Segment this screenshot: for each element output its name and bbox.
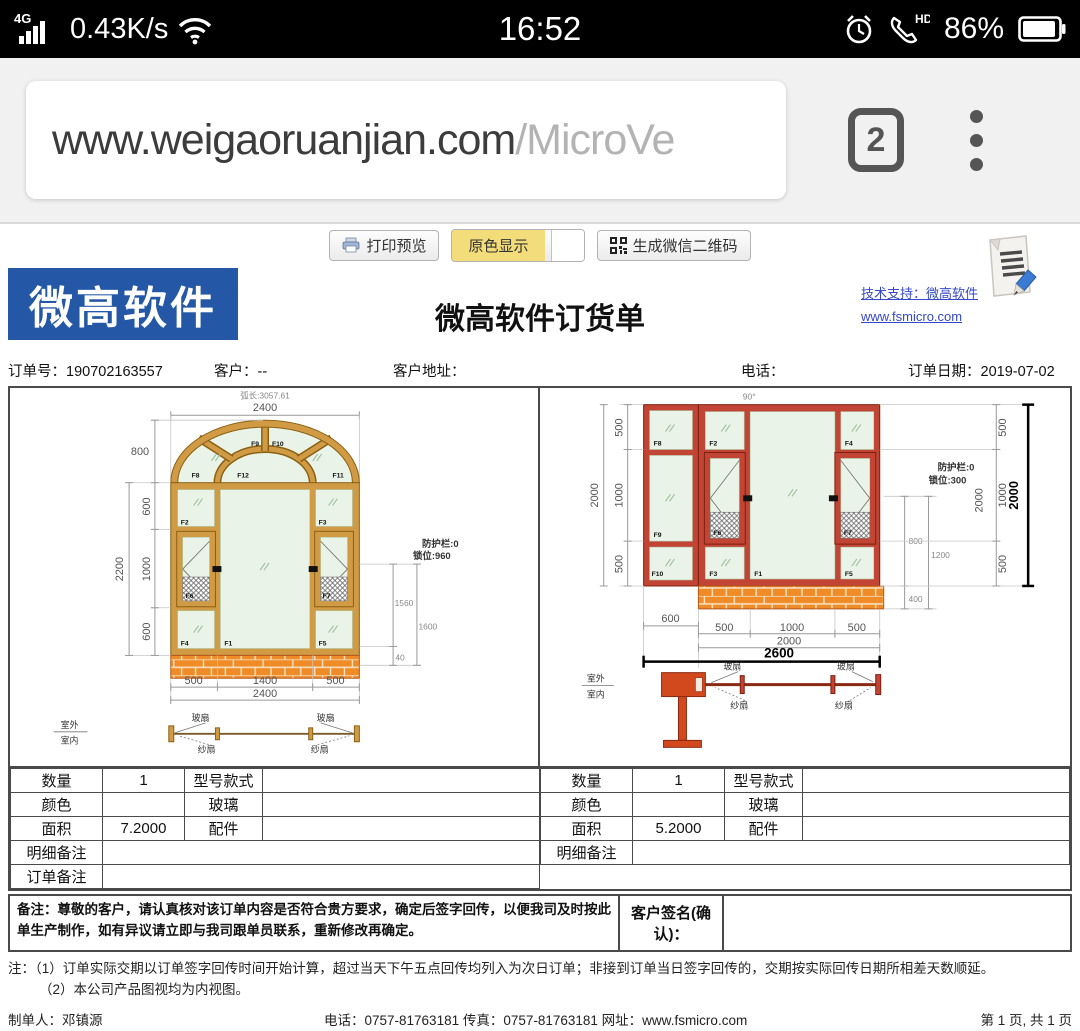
dim-label: 600 (661, 613, 679, 625)
dim-label: 400 (909, 594, 923, 604)
panel-label: F4 (845, 440, 853, 447)
panel-label: F6 (186, 593, 194, 600)
dim-label: 1000 (780, 622, 804, 634)
guard-label: 防护栏:0 (422, 538, 459, 549)
footnote-line: （2）本公司产品图视均为内视图。 (8, 980, 1072, 1001)
support-links: 技术支持：微高软件 www.fsmicro.com (861, 282, 978, 329)
dim-label: 800 (131, 446, 149, 458)
outside-label: 室外 (61, 719, 79, 730)
dim-label: 2000 (589, 483, 601, 507)
panel-label: F4 (181, 640, 189, 647)
panel-label: F2 (181, 519, 189, 526)
empty-cell (541, 865, 1070, 890)
glass-sash-label: 玻扇 (837, 661, 855, 672)
url-bar[interactable]: www.weigaoruanjian.com/MicroVe (26, 81, 786, 199)
tech-support-link[interactable]: 技术支持：微高软件 (861, 282, 978, 305)
panel-label: F12 (237, 473, 249, 480)
signature-area (724, 896, 1070, 950)
qty-value: 1 (633, 769, 725, 793)
dim-label: 1400 (253, 675, 277, 687)
screen-sash-label: 纱扇 (311, 744, 329, 755)
order-maker: 制单人：邓镇源 (8, 1009, 103, 1029)
order-sheet: 弧长:3057.61 2400 (8, 386, 1072, 891)
guard-label: 防护栏:0 (938, 461, 975, 473)
status-bar: 4G 0.43K/s 16:52 HD 86% (0, 0, 1080, 58)
dim-label: 600 (141, 497, 153, 515)
detail-remark-value (103, 841, 540, 865)
customer-address: 客户地址： (393, 360, 466, 381)
model-value (263, 769, 540, 793)
table-row: 订单备注 (11, 865, 540, 889)
glass-value (263, 793, 540, 817)
dim-label: 2400 (253, 402, 277, 414)
alarm-icon (844, 13, 874, 45)
signal-bars-icon (19, 21, 45, 44)
dim-label: 500 (326, 675, 344, 687)
panel-label: F5 (845, 571, 853, 578)
qty-label: 数量 (11, 769, 103, 793)
battery-percent: 86% (944, 12, 1004, 46)
table-row: 面积 5.2000 配件 (541, 817, 1070, 841)
right-drawing-cell: 90° (540, 388, 1070, 766)
panel-label: F9 (251, 441, 259, 448)
right-item-table: 数量 1 型号款式 颜色 玻璃 面积 5.2000 配件 (540, 768, 1070, 889)
table-row (541, 865, 1070, 890)
parts-value (263, 817, 540, 841)
parts-label: 配件 (725, 817, 803, 841)
web-page: 打印预览 原色显示 生成微信二维码 微高软件 微高软件订货单 技术支持：微 (0, 224, 1080, 1031)
page-indicator: 第 1 页, 共 1 页 (980, 1009, 1072, 1029)
dim-label: 1000 (141, 557, 153, 581)
dim-label: 500 (614, 418, 626, 436)
order-remark-label: 订单备注 (11, 865, 103, 889)
glass-sash-label: 玻扇 (723, 661, 741, 672)
table-row: 颜色 玻璃 (11, 793, 540, 817)
network-speed: 0.43K/s (70, 13, 168, 46)
angle-label: 90° (743, 392, 756, 402)
color-value (633, 793, 725, 817)
bay-window-drawing: 90° (540, 388, 1070, 766)
model-label: 型号款式 (185, 769, 263, 793)
footnote-line: 注：（1）订单实际交期以订单签字回传时间开始计算，超过当天下午五点回传均列入为次… (8, 959, 1072, 980)
customer: 客户：-- (214, 360, 267, 381)
dim-label: 40 (395, 652, 405, 662)
area-label: 面积 (11, 817, 103, 841)
table-row: 数量 1 型号款式 (11, 769, 540, 793)
order-remark-value (103, 865, 540, 889)
inside-label: 室内 (587, 689, 605, 700)
document-header: 微高软件 微高软件订货单 技术支持：微高软件 www.fsmicro.com (0, 264, 1080, 356)
panel-label: F3 (709, 571, 717, 578)
qty-value: 1 (103, 769, 185, 793)
dim-label: 2200 (114, 557, 126, 581)
report-toolbar: 打印预览 原色显示 生成微信二维码 (0, 230, 1080, 260)
remark-box: 备注：尊敬的客户，请认真核对该订单内容是否符合贵方要求，确定后签字回传，以便我司… (8, 894, 1072, 952)
table-row: 面积 7.2000 配件 (11, 817, 540, 841)
dim-label: 1560 (395, 598, 414, 608)
panel-label: F7 (844, 530, 852, 537)
glass-sash-label: 玻扇 (317, 712, 335, 723)
left-item-table: 数量 1 型号款式 颜色 玻璃 面积 7.2000 配件 (10, 768, 540, 889)
battery-icon (1018, 15, 1066, 43)
dim-label: 500 (997, 555, 1009, 573)
panel-label: F11 (333, 473, 344, 480)
panel-label: F2 (709, 440, 717, 447)
signature-label: 客户签名(确认)： (620, 896, 724, 950)
qr-code-icon (610, 237, 627, 254)
glass-sash-label: 玻扇 (192, 712, 210, 723)
parts-label: 配件 (185, 817, 263, 841)
wifi-icon (176, 13, 214, 45)
panel-label: F7 (323, 593, 331, 600)
color-value (103, 793, 185, 817)
panel-label: F10 (652, 571, 664, 578)
dim-label: 500 (614, 555, 626, 573)
glass-value (803, 793, 1070, 817)
order-info-row: 订单号：190702163557 客户：-- 客户地址： 电话： 订单日期：20… (0, 356, 1080, 384)
customer-remark: 备注：尊敬的客户，请认真核对该订单内容是否符合贵方要求，确定后签字回传，以便我司… (10, 896, 620, 950)
inside-label: 室内 (61, 735, 79, 746)
model-value (803, 769, 1070, 793)
dim-label: 1000 (614, 483, 626, 507)
clock-time: 16:52 (499, 10, 582, 48)
order-tables: 数量 1 型号款式 颜色 玻璃 面积 7.2000 配件 (10, 766, 1070, 889)
tab-counter-button[interactable]: 2 (848, 108, 904, 172)
print-preview-button[interactable]: 打印预览 (329, 230, 439, 261)
svg-text:HD: HD (915, 12, 930, 26)
glass-label: 玻璃 (725, 793, 803, 817)
dim-label: 500 (185, 675, 203, 687)
customer-phone: 电话： (741, 360, 785, 381)
panel-label: F8 (192, 473, 200, 480)
dim-label: 2000 (973, 488, 985, 512)
browser-menu-button[interactable] (970, 110, 983, 171)
outside-label: 室外 (587, 673, 605, 684)
panel-label: F5 (319, 640, 327, 647)
table-row: 明细备注 (541, 841, 1070, 865)
url-text: www.weigaoruanjian.com/MicroVe (52, 116, 674, 165)
screen-sash-label: 纱扇 (198, 744, 216, 755)
area-value: 5.2000 (633, 817, 725, 841)
dim-label: 500 (848, 622, 866, 634)
panel-label: F10 (272, 441, 284, 448)
browser-toolbar: www.weigaoruanjian.com/MicroVe 2 (0, 58, 1080, 224)
color-toggle-swatch (551, 230, 584, 261)
panel-label: F6 (713, 530, 721, 537)
screen-sash-label: 纱扇 (835, 700, 853, 711)
lock-label: 锁位:300 (929, 474, 967, 486)
panel-label: F8 (654, 440, 662, 447)
table-row: 数量 1 型号款式 (541, 769, 1070, 793)
dim-label: 1600 (418, 622, 437, 632)
panel-label: F3 (319, 519, 327, 526)
drawings-row: 弧长:3057.61 2400 (10, 388, 1070, 766)
model-label: 型号款式 (725, 769, 803, 793)
dim-label: 1200 (931, 550, 950, 560)
color-label: 颜色 (541, 793, 633, 817)
printer-icon (342, 237, 360, 253)
dim-label: 500 (715, 622, 733, 634)
table-row: 颜色 玻璃 (541, 793, 1070, 817)
detail-remark-label: 明细备注 (11, 841, 103, 865)
screen-sash-label: 纱扇 (730, 700, 748, 711)
dim-label: 2600 (764, 646, 794, 661)
order-date: 订单日期：2019-07-02 (908, 360, 1055, 381)
footnotes: 注：（1）订单实际交期以订单签字回传时间开始计算，超过当天下午五点回传均列入为次… (8, 959, 1072, 1001)
company-contact: 电话：0757-81763181 传真：0757-81763181 网址：www… (324, 1009, 747, 1029)
glass-label: 玻璃 (185, 793, 263, 817)
detail-remark-label: 明细备注 (541, 841, 633, 865)
original-color-toggle[interactable]: 原色显示 (451, 229, 584, 262)
dim-label: 500 (997, 418, 1009, 436)
panel-label: F1 (754, 571, 762, 578)
dim-label: 2000 (1006, 481, 1021, 510)
dim-label: 2400 (253, 688, 277, 700)
generate-wechat-qr-button[interactable]: 生成微信二维码 (597, 230, 751, 261)
company-logo: 微高软件 (8, 268, 238, 340)
left-drawing-cell: 弧长:3057.61 2400 (10, 388, 540, 766)
detail-remark-value (633, 841, 1070, 865)
dim-label: 弧长:3057.61 (240, 390, 290, 400)
qty-label: 数量 (541, 769, 633, 793)
signal-icon: 4G (14, 10, 68, 48)
phone-hd-icon: HD (888, 12, 930, 46)
color-label: 颜色 (11, 793, 103, 817)
website-link[interactable]: www.fsmicro.com (861, 305, 978, 328)
order-number: 订单号：190702163557 (8, 360, 163, 381)
panel-label: F9 (654, 532, 662, 539)
parts-value (803, 817, 1070, 841)
area-value: 7.2000 (103, 817, 185, 841)
dim-label: 600 (141, 622, 153, 640)
table-row: 明细备注 (11, 841, 540, 865)
document-footer: 制单人：邓镇源 电话：0757-81763181 传真：0757-8176318… (8, 1009, 1072, 1031)
panel-label: F1 (224, 640, 232, 647)
lock-label: 锁位:960 (413, 550, 451, 561)
area-label: 面积 (541, 817, 633, 841)
arched-window-drawing: 弧长:3057.61 2400 (10, 388, 538, 766)
